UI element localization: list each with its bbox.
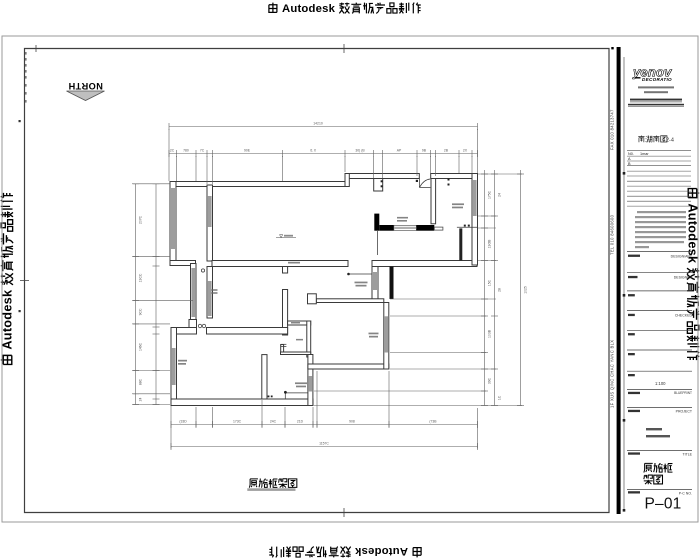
svg-text:N0.: N0. bbox=[628, 152, 634, 156]
svg-text:780: 780 bbox=[183, 149, 189, 153]
svg-text:88C: 88C bbox=[139, 378, 143, 385]
svg-text:DESIGNER: DESIGNER bbox=[674, 276, 693, 280]
svg-text:24: 24 bbox=[498, 193, 502, 197]
svg-text:24: 24 bbox=[139, 398, 143, 402]
svg-text:9B: 9B bbox=[422, 149, 427, 153]
svg-text:DECORATIO: DECORATIO bbox=[642, 77, 672, 82]
svg-text:CHECKED: CHECKED bbox=[675, 314, 693, 318]
svg-text:146C: 146C bbox=[139, 342, 143, 351]
svg-text:2B: 2B bbox=[444, 149, 449, 153]
svg-text:Autodesk: Autodesk bbox=[354, 545, 408, 557]
svg-text:Autodesk: Autodesk bbox=[282, 3, 336, 15]
svg-text:AP: AP bbox=[397, 149, 402, 153]
svg-text:13CC: 13CC bbox=[139, 273, 143, 282]
svg-text:14210: 14210 bbox=[313, 122, 323, 126]
svg-text:13OB: 13OB bbox=[488, 239, 492, 248]
svg-text:7C: 7C bbox=[200, 149, 205, 153]
svg-text:TEL 010 84600600: TEL 010 84600600 bbox=[610, 214, 615, 255]
svg-text:103B: 103B bbox=[488, 329, 492, 338]
svg-text:175C: 175C bbox=[488, 190, 492, 199]
svg-text:30) (B: 30) (B bbox=[355, 149, 365, 153]
svg-text:2X: 2X bbox=[463, 149, 468, 153]
svg-text:/1 X: /1 X bbox=[310, 149, 317, 153]
svg-text:1157C: 1157C bbox=[319, 442, 329, 446]
svg-text:2-4: 2-4 bbox=[666, 138, 674, 144]
svg-text:39C: 39C bbox=[488, 377, 492, 384]
svg-text:1:100: 1:100 bbox=[655, 381, 666, 386]
svg-text:BLUEPRINT: BLUEPRINT bbox=[674, 391, 692, 395]
svg-text:207C: 207C bbox=[139, 215, 143, 224]
svg-text:NORTH: NORTH bbox=[68, 81, 103, 91]
svg-text:1C: 1C bbox=[498, 395, 502, 400]
svg-text:1F XUS QINC CHAC YANC BLX: 1F XUS QINC CHAC YANC BLX bbox=[610, 340, 615, 408]
svg-text:21D: 21D bbox=[297, 420, 304, 424]
svg-text:2C: 2C bbox=[170, 149, 175, 153]
svg-text:1mar: 1mar bbox=[640, 152, 649, 156]
svg-text:90E: 90E bbox=[244, 149, 251, 153]
svg-text:1025: 1025 bbox=[524, 286, 528, 294]
svg-text:15C: 15C bbox=[488, 279, 492, 286]
svg-text:24C: 24C bbox=[270, 420, 277, 424]
svg-text:28: 28 bbox=[498, 288, 502, 292]
svg-text:DESIGN/ART: DESIGN/ART bbox=[671, 254, 693, 258]
svg-text:P–01: P–01 bbox=[645, 496, 682, 513]
svg-text:908: 908 bbox=[349, 420, 355, 424]
svg-text:FAX 010 84213747: FAX 010 84213747 bbox=[610, 109, 615, 150]
svg-text:(33D: (33D bbox=[179, 420, 187, 424]
svg-text:(73B: (73B bbox=[429, 420, 437, 424]
svg-text:9CC: 9CC bbox=[139, 308, 143, 315]
svg-text:TITLE: TITLE bbox=[682, 453, 692, 457]
svg-text:173C: 173C bbox=[233, 420, 242, 424]
svg-text:PROJECT: PROJECT bbox=[676, 409, 693, 413]
